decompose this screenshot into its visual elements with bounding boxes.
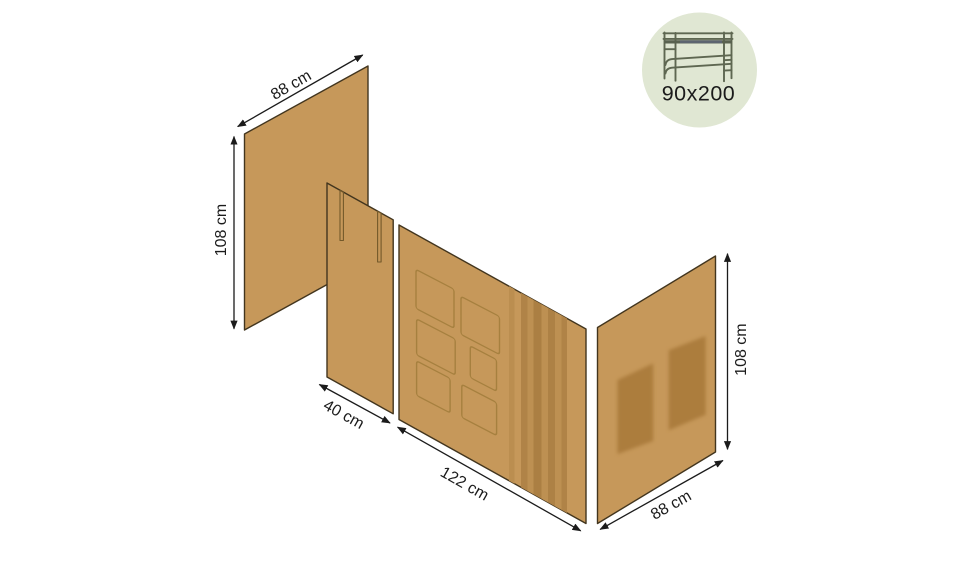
svg-text:88 cm: 88 cm — [648, 487, 694, 523]
svg-text:108 cm: 108 cm — [213, 204, 230, 256]
svg-text:108 cm: 108 cm — [733, 323, 750, 375]
svg-text:40 cm: 40 cm — [320, 397, 366, 433]
svg-text:88 cm: 88 cm — [268, 67, 314, 103]
svg-text:122 cm: 122 cm — [437, 464, 491, 505]
svg-text:90x200: 90x200 — [662, 82, 736, 106]
